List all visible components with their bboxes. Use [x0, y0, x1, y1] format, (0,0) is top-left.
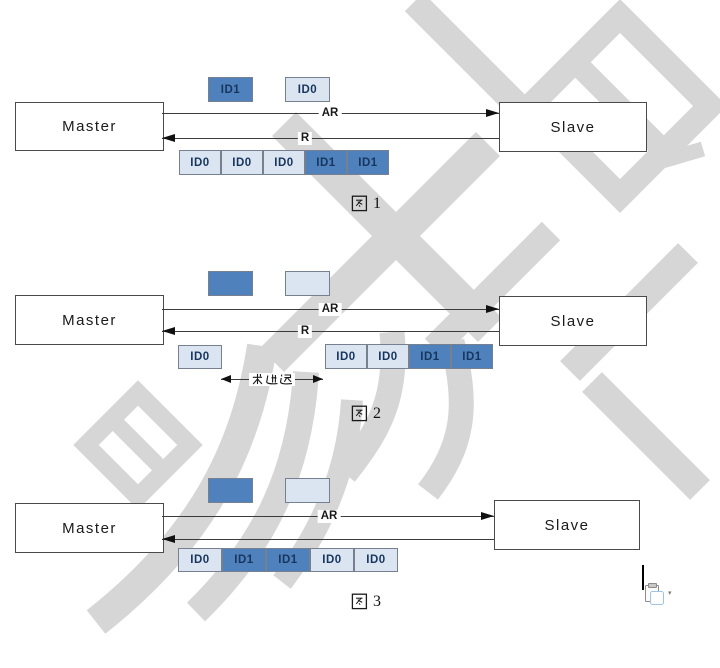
fig3-row-cell: ID1: [222, 548, 266, 572]
fig2-ar-label: AR: [319, 303, 342, 316]
fig2-delay-left-arrowhead-icon: [221, 375, 231, 383]
fig2-r-line: [162, 331, 499, 332]
fig3-queue-id0: [285, 478, 330, 503]
fig2-row-cell: ID0: [325, 344, 367, 369]
fig1-queue-id0: ID0: [285, 77, 330, 102]
paste-options-button[interactable]: ▾: [643, 583, 677, 607]
fig3-row-cell: ID0: [178, 548, 222, 572]
fig2-delay-right-arrowhead-icon: [313, 375, 323, 383]
fig2-slave-box: Slave: [499, 296, 647, 346]
fig1-r-arrowhead-icon: [162, 134, 175, 142]
fig2-ar-arrowhead-icon: [486, 305, 499, 313]
fig1-row-cell: ID0: [263, 150, 305, 175]
fig3-ar-label: AR: [318, 510, 341, 523]
fig1-slave-box: Slave: [499, 102, 647, 152]
fig1-caption: 1: [351, 194, 381, 212]
fig1-ar-label: AR: [319, 107, 342, 120]
pasted-page-icon: [650, 591, 664, 605]
paste-options-dropdown-icon[interactable]: ▾: [668, 590, 672, 597]
clipboard-clip-icon: [648, 583, 657, 588]
fig3-row-cell: ID0: [354, 548, 398, 572]
tu-character-glyph: [351, 194, 368, 212]
fig2-r-arrowhead-icon: [162, 327, 175, 335]
fig2-first-response-cell: ID0: [178, 345, 222, 369]
fig2-delay-label: [249, 373, 295, 386]
fig3-row-cell: ID1: [266, 548, 310, 572]
fig3-return-arrowhead-icon: [162, 535, 175, 543]
fig1-ar-arrowhead-icon: [486, 109, 499, 117]
fig1-r-label: R: [298, 132, 312, 145]
fig2-caption: 2: [351, 404, 381, 422]
fig3-row-cell: ID0: [310, 548, 354, 572]
fig2-row-cell: ID1: [451, 344, 493, 369]
fig1-row-cell: ID1: [347, 150, 389, 175]
fig3-queue-id1: [208, 478, 253, 503]
fig2-queue-id0: [285, 271, 330, 296]
fig1-r-line: [162, 138, 499, 139]
fig2-master-box: Master: [15, 295, 164, 345]
fig1-caption-number: 1: [373, 195, 381, 212]
fig2-queue-id1: [208, 271, 253, 296]
fig1-row-cell: ID1: [305, 150, 347, 175]
fig1-master-box: Master: [15, 102, 164, 151]
fig3-master-box: Master: [15, 503, 164, 553]
fig2-row-cell: ID1: [409, 344, 451, 369]
delay-label-glyphs: [251, 373, 293, 386]
fig2-caption-number: 2: [373, 405, 381, 422]
fig3-slave-box: Slave: [494, 500, 640, 550]
fig1-row-cell: ID0: [179, 150, 221, 175]
fig2-row-cell: ID0: [367, 344, 409, 369]
fig1-queue-id1: ID1: [208, 77, 253, 102]
fig3-caption: 3: [351, 592, 381, 610]
tu-character-glyph: [351, 404, 368, 422]
fig3-caption-number: 3: [373, 593, 381, 610]
fig2-r-label: R: [298, 325, 312, 338]
fig1-row-cell: ID0: [221, 150, 263, 175]
document-page: ID1 ID0 Master Slave AR R ID0 ID0 ID0 ID…: [0, 0, 720, 668]
fig3-ar-arrowhead-icon: [481, 512, 494, 520]
tu-character-glyph: [351, 592, 368, 610]
fig3-return-line: [162, 539, 494, 540]
